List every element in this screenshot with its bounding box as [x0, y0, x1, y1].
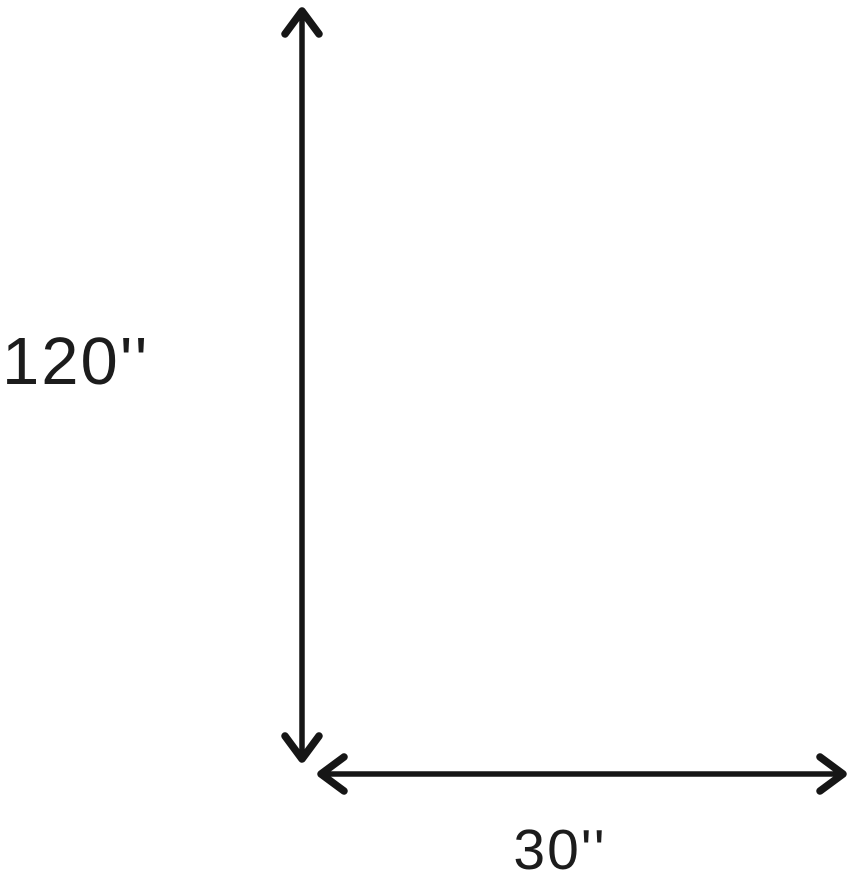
width-dimension-label: 30'': [478, 822, 642, 879]
rug-image: [322, 10, 842, 758]
product-dimension-diagram: 120'' 30'': [0, 0, 850, 880]
height-dimension-label: 120'': [2, 328, 144, 395]
width-arrow: [314, 752, 850, 796]
rug-illustration: [322, 10, 842, 758]
height-arrow: [280, 6, 324, 764]
